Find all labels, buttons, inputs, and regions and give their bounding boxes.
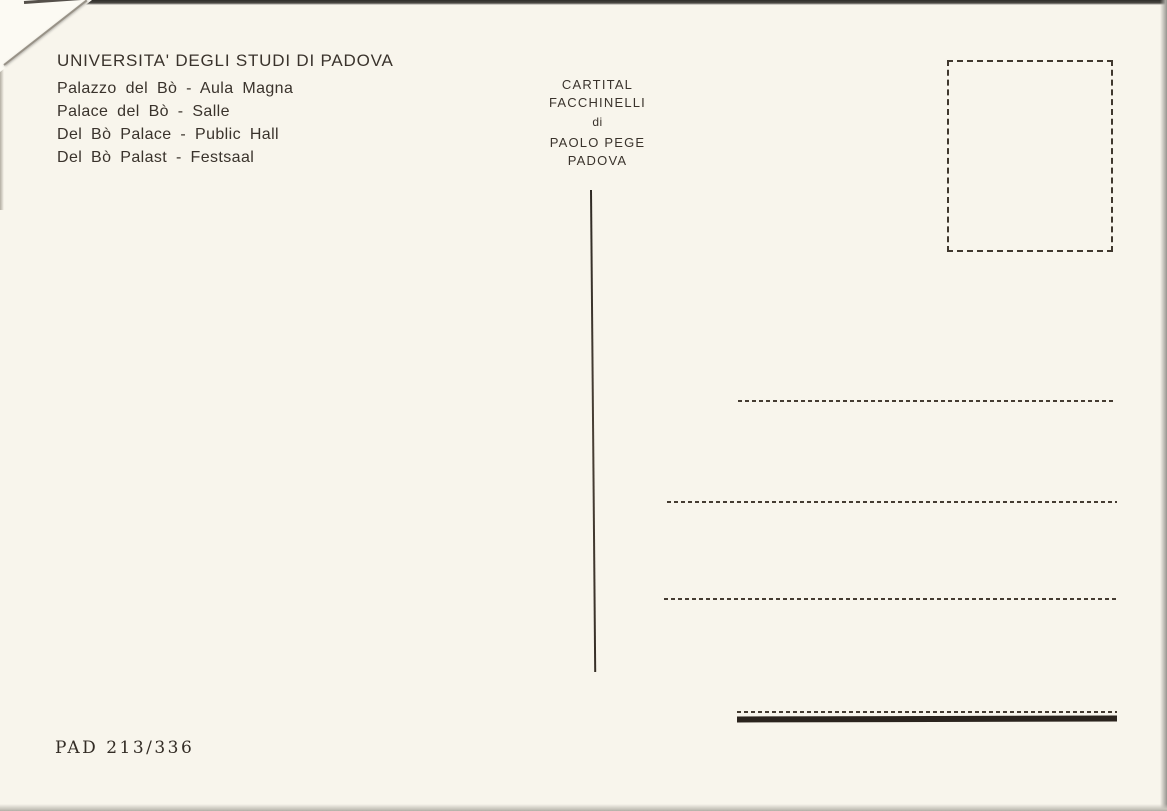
stamp-box (947, 60, 1113, 252)
publisher-line-5: PADOVA (515, 152, 680, 170)
address-line-1 (738, 400, 1116, 402)
publisher-line-2: FACCHINELLI (515, 94, 680, 112)
divider-line (590, 190, 596, 672)
card-title: UNIVERSITA' DEGLI STUDI DI PADOVA (57, 51, 394, 71)
bottom-bar (737, 716, 1117, 723)
photo-top-edge (66, 0, 1167, 5)
catalog-number: PAD 213/336 (55, 738, 194, 758)
publisher-imprint: CARTITAL FACCHINELLI di PAOLO PEGE PADOV… (515, 76, 680, 170)
caption-german: Del Bò Palast - Festsaal (57, 146, 394, 169)
postcard-back: UNIVERSITA' DEGLI STUDI DI PADOVA Palazz… (0, 0, 1167, 811)
address-line-2 (667, 501, 1117, 503)
caption-english: Del Bò Palace - Public Hall (57, 123, 394, 146)
caption-italian: Palazzo del Bò - Aula Magna (57, 77, 394, 100)
publisher-line-3: di (515, 112, 680, 132)
address-line-4 (737, 711, 1117, 713)
publisher-line-1: CARTITAL (515, 76, 680, 94)
caption-french: Palace del Bò - Salle (57, 100, 394, 123)
photo-bottom-edge (0, 804, 1167, 811)
title-block: UNIVERSITA' DEGLI STUDI DI PADOVA Palazz… (57, 51, 394, 169)
publisher-line-4: PAOLO PEGE (515, 134, 680, 152)
address-line-3 (664, 598, 1116, 600)
photo-right-edge (1160, 0, 1167, 811)
